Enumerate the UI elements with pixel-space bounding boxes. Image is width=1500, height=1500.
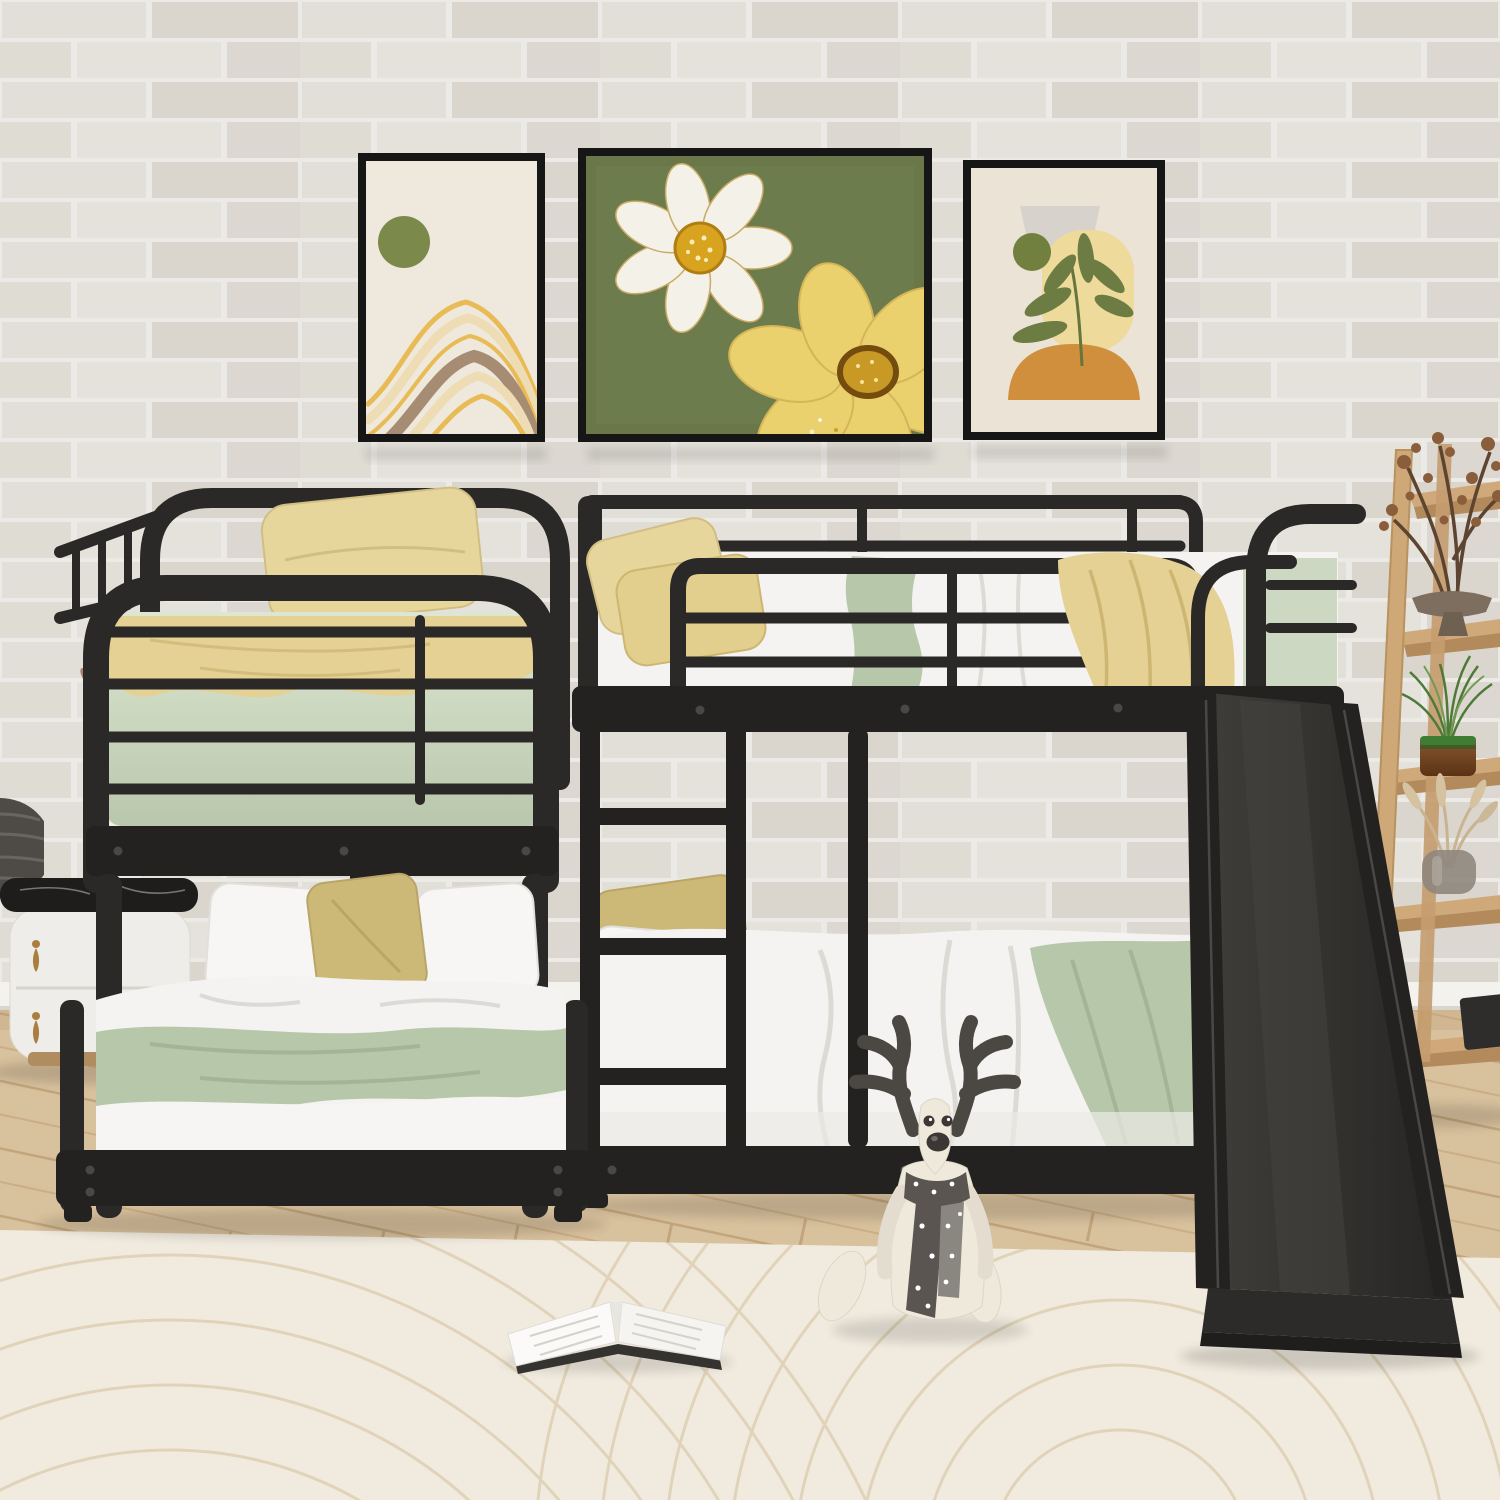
toy-eye [942,1116,953,1127]
toy-nose [927,1133,950,1152]
artwork-center [578,148,991,505]
bunk-bed-left [37,485,607,1239]
toy-eye [924,1116,935,1127]
bedroom-photo: Kids bedroom with black metal L-shaped q… [0,0,1500,1500]
left-bed-upper-frame [86,826,558,876]
artwork-right [963,160,1167,458]
ladder-rung [580,808,746,825]
art-right-circle [1013,233,1051,271]
sage-blanket-top-bunk [846,556,923,694]
art-left-sun [378,216,430,268]
shelf-dark-object [1459,994,1500,1051]
pampas-vase [1422,850,1476,894]
yellow-pillow-top-left-bed [259,485,485,627]
sheet-bottom-fold [96,1096,566,1152]
ladder-rung [580,938,746,955]
ladder-rung [580,1068,746,1085]
left-bed-bottom-frame [56,1150,592,1206]
